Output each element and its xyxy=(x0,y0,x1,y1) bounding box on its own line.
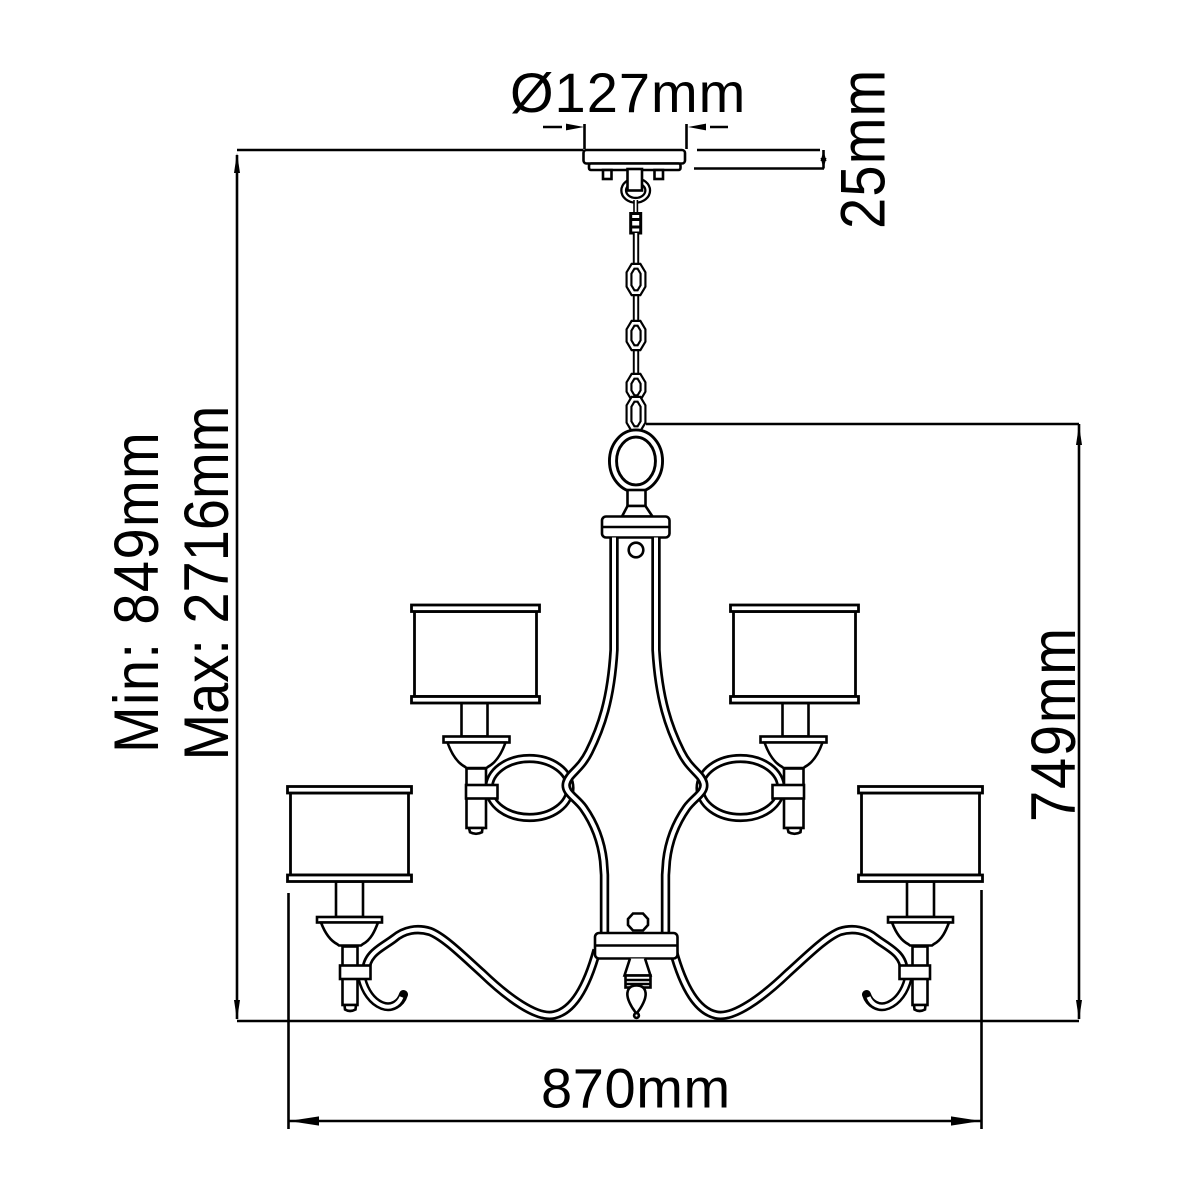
svg-text:Max: 2716mm: Max: 2716mm xyxy=(171,406,242,761)
svg-text:Min: 849mm: Min: 849mm xyxy=(101,431,172,753)
svg-text:Ø127mm: Ø127mm xyxy=(510,61,746,124)
svg-text:749mm: 749mm xyxy=(1018,626,1089,822)
svg-text:870mm: 870mm xyxy=(541,1057,731,1120)
svg-text:25mm: 25mm xyxy=(827,69,898,229)
